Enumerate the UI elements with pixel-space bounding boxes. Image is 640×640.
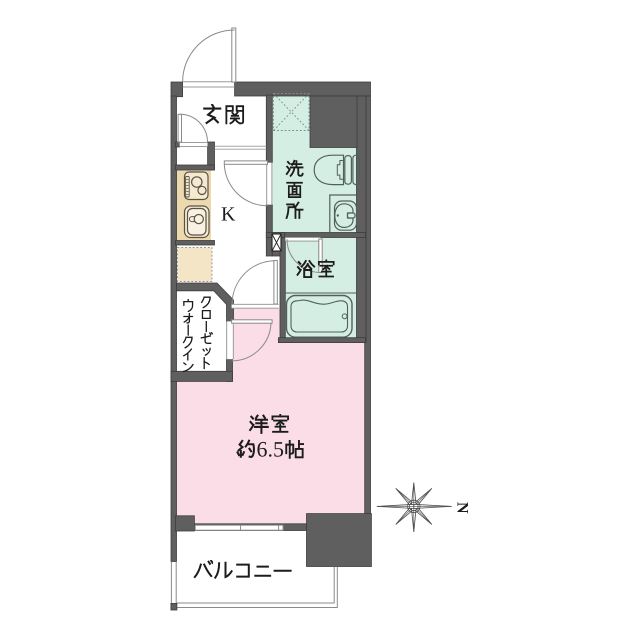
svg-text:K: K	[221, 204, 236, 226]
svg-text:N: N	[454, 502, 471, 514]
svg-text:6.5: 6.5	[257, 437, 285, 462]
